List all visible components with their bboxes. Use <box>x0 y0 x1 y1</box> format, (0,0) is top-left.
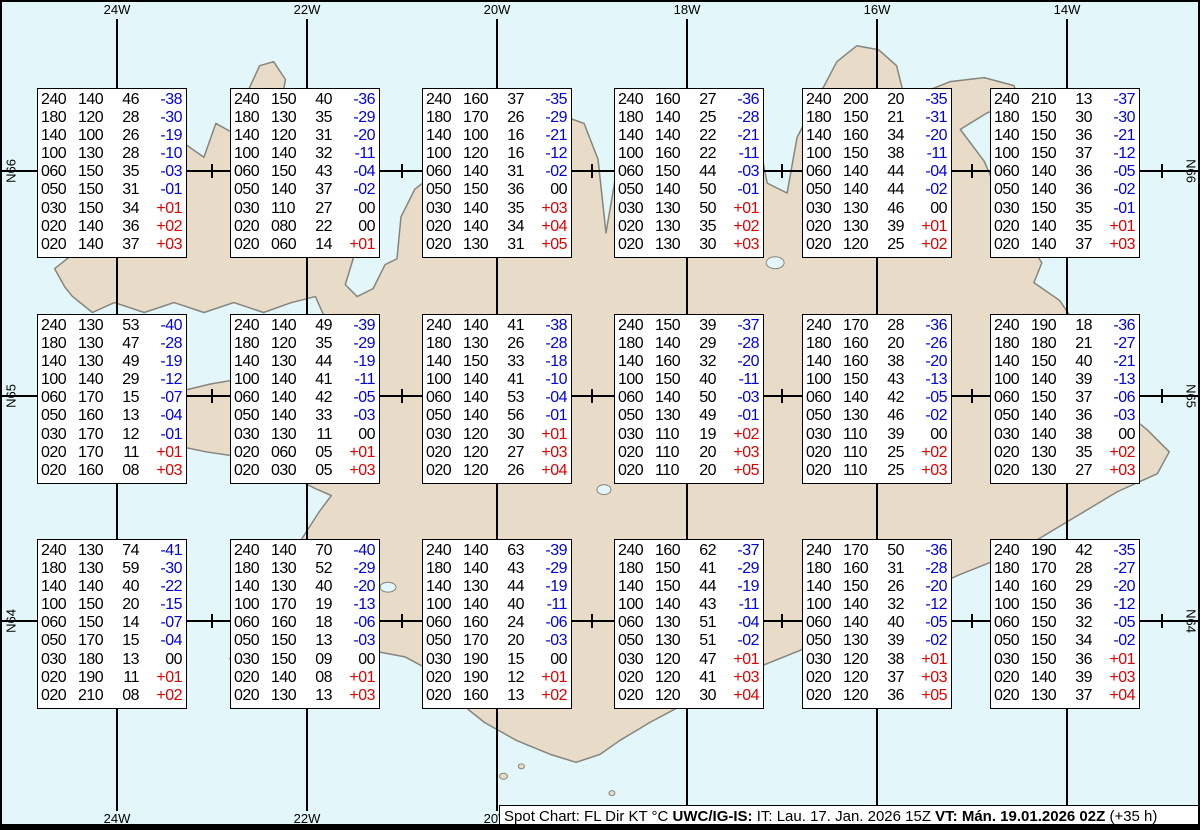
station-cell-temp: -02 <box>911 407 947 425</box>
minor-tick <box>781 164 783 178</box>
station-cell-fl: 030 <box>994 426 1024 444</box>
station-cell-dir: 140 <box>463 218 493 236</box>
station-cell-temp: -11 <box>723 371 759 389</box>
station-cell-fl: 050 <box>41 407 71 425</box>
station-cell-kt: 19 <box>308 596 332 614</box>
station-cell-kt: 26 <box>115 127 139 145</box>
station-cell-kt: 50 <box>692 200 716 218</box>
station-cell-temp: -03 <box>723 389 759 407</box>
footer-segment: IT: Lau. 17. Jan. 2026 15Z <box>753 808 936 825</box>
station-cell-kt: 36 <box>1068 181 1092 199</box>
station-cell-dir: 130 <box>78 335 108 353</box>
station-cell-temp: 00 <box>531 651 567 669</box>
station-cell-kt: 41 <box>692 669 716 687</box>
station-cell-dir: 140 <box>1031 669 1061 687</box>
station-row: 06014036-05 <box>994 163 1136 181</box>
station-row: 05015013-03 <box>234 632 376 650</box>
station-cell-fl: 060 <box>41 163 71 181</box>
station-cell-kt: 28 <box>1068 560 1092 578</box>
minor-tick <box>971 614 973 628</box>
station-cell-temp: -35 <box>1099 542 1135 560</box>
station-cell-kt: 25 <box>880 444 904 462</box>
station-cell-fl: 030 <box>426 651 456 669</box>
station-row: 05013039-02 <box>806 632 948 650</box>
station-row: 18017028-27 <box>994 560 1136 578</box>
station-cell-fl: 020 <box>806 462 836 480</box>
station-cell-temp: -41 <box>146 542 182 560</box>
station-cell-temp: -11 <box>339 371 375 389</box>
station-cell-kt: 62 <box>692 542 716 560</box>
station-row: 05017015-04 <box>41 632 183 650</box>
station-cell-kt: 42 <box>880 389 904 407</box>
station-cell-dir: 160 <box>1031 578 1061 596</box>
station-cell-dir: 130 <box>843 407 873 425</box>
station-cell-fl: 060 <box>994 614 1024 632</box>
station-cell-fl: 020 <box>426 687 456 705</box>
station-cell-fl: 180 <box>426 560 456 578</box>
station-cell-temp: -04 <box>911 163 947 181</box>
station-cell-fl: 140 <box>426 127 456 145</box>
station-cell-kt: 43 <box>692 596 716 614</box>
station-row: 02013013+03 <box>234 687 376 705</box>
station-row: 18014025-28 <box>618 109 760 127</box>
station-cell-temp: -11 <box>911 145 947 163</box>
station-box-r2c6: 24019018-3618018021-2714015040-211001403… <box>990 314 1140 484</box>
station-cell-dir: 140 <box>463 163 493 181</box>
station-cell-kt: 34 <box>880 127 904 145</box>
station-cell-temp: +01 <box>339 444 375 462</box>
station-cell-fl: 100 <box>994 145 1024 163</box>
station-cell-temp: +01 <box>1099 651 1135 669</box>
station-cell-kt: 36 <box>1068 596 1092 614</box>
station-cell-temp: 00 <box>146 651 182 669</box>
station-row: 24016062-37 <box>618 542 760 560</box>
station-cell-fl: 140 <box>41 127 71 145</box>
station-row: 03014035+03 <box>426 200 568 218</box>
station-cell-temp: +04 <box>1099 687 1135 705</box>
station-cell-dir: 150 <box>271 91 301 109</box>
station-cell-temp: -30 <box>1099 109 1135 127</box>
station-cell-dir: 140 <box>463 542 493 560</box>
station-row: 24014041-38 <box>426 317 568 335</box>
station-cell-temp: -36 <box>723 91 759 109</box>
station-cell-temp: -07 <box>146 614 182 632</box>
station-cell-dir: 140 <box>1031 407 1061 425</box>
station-cell-kt: 26 <box>500 109 524 127</box>
station-cell-dir: 150 <box>655 560 685 578</box>
station-cell-fl: 050 <box>994 407 1024 425</box>
station-cell-kt: 22 <box>692 145 716 163</box>
station-cell-fl: 030 <box>234 200 264 218</box>
station-cell-kt: 30 <box>692 687 716 705</box>
station-cell-temp: -29 <box>531 560 567 578</box>
station-cell-dir: 190 <box>78 669 108 687</box>
station-cell-dir: 160 <box>78 407 108 425</box>
station-cell-fl: 140 <box>234 353 264 371</box>
station-cell-kt: 22 <box>692 127 716 145</box>
station-cell-kt: 50 <box>692 389 716 407</box>
station-cell-dir: 140 <box>78 236 108 254</box>
station-row: 18017026-29 <box>426 109 568 127</box>
station-row: 24021013-37 <box>994 91 1136 109</box>
station-row: 05014036-03 <box>994 407 1136 425</box>
station-cell-temp: -28 <box>531 335 567 353</box>
station-cell-kt: 36 <box>115 218 139 236</box>
station-cell-temp: +02 <box>723 426 759 444</box>
station-cell-dir: 160 <box>463 687 493 705</box>
station-row: 06017015-07 <box>41 389 183 407</box>
station-cell-fl: 020 <box>618 669 648 687</box>
station-cell-temp: -13 <box>911 371 947 389</box>
station-cell-dir: 130 <box>271 560 301 578</box>
station-cell-temp: -21 <box>531 127 567 145</box>
station-cell-fl: 180 <box>994 335 1024 353</box>
station-cell-fl: 050 <box>41 181 71 199</box>
station-row: 10017019-13 <box>234 596 376 614</box>
station-row: 02012025+02 <box>806 236 948 254</box>
station-cell-fl: 240 <box>994 542 1024 560</box>
station-cell-kt: 35 <box>1068 200 1092 218</box>
station-cell-fl: 030 <box>806 426 836 444</box>
station-cell-temp: -04 <box>723 614 759 632</box>
station-cell-fl: 050 <box>994 632 1024 650</box>
station-cell-dir: 110 <box>271 200 301 218</box>
station-cell-temp: +01 <box>723 651 759 669</box>
station-row: 05013049-01 <box>618 407 760 425</box>
station-cell-dir: 080 <box>271 218 301 236</box>
station-cell-kt: 33 <box>308 407 332 425</box>
station-row: 02019011+01 <box>41 669 183 687</box>
station-cell-kt: 29 <box>692 335 716 353</box>
station-row: 14015040-21 <box>994 353 1136 371</box>
station-cell-dir: 190 <box>1031 317 1061 335</box>
station-cell-kt: 12 <box>500 669 524 687</box>
station-cell-dir: 150 <box>843 109 873 127</box>
station-cell-kt: 35 <box>500 200 524 218</box>
station-cell-dir: 130 <box>1031 687 1061 705</box>
station-cell-dir: 150 <box>1031 632 1061 650</box>
station-cell-kt: 52 <box>308 560 332 578</box>
station-cell-fl: 020 <box>994 462 1024 480</box>
station-cell-kt: 44 <box>692 163 716 181</box>
station-cell-kt: 13 <box>308 687 332 705</box>
station-cell-fl: 240 <box>426 542 456 560</box>
station-cell-fl: 100 <box>806 596 836 614</box>
station-cell-dir: 140 <box>78 371 108 389</box>
station-cell-fl: 050 <box>426 181 456 199</box>
station-cell-kt: 38 <box>880 145 904 163</box>
station-cell-fl: 100 <box>806 371 836 389</box>
station-cell-fl: 020 <box>234 218 264 236</box>
station-cell-kt: 12 <box>115 426 139 444</box>
station-row: 0501503600 <box>426 181 568 199</box>
station-cell-fl: 180 <box>806 335 836 353</box>
station-row: 10015038-11 <box>806 145 948 163</box>
station-cell-dir: 140 <box>655 335 685 353</box>
minor-tick <box>1161 389 1163 403</box>
station-cell-dir: 140 <box>463 596 493 614</box>
station-cell-dir: 160 <box>843 335 873 353</box>
station-cell-kt: 05 <box>308 462 332 480</box>
station-cell-dir: 150 <box>271 632 301 650</box>
station-cell-temp: +02 <box>911 444 947 462</box>
station-cell-fl: 060 <box>994 163 1024 181</box>
station-cell-temp: -15 <box>146 596 182 614</box>
station-cell-temp: -29 <box>339 109 375 127</box>
station-cell-fl: 100 <box>234 145 264 163</box>
station-cell-temp: +02 <box>1099 444 1135 462</box>
station-cell-dir: 130 <box>655 236 685 254</box>
station-cell-kt: 29 <box>115 371 139 389</box>
station-cell-dir: 140 <box>843 389 873 407</box>
station-row: 14016032-20 <box>618 353 760 371</box>
station-cell-kt: 28 <box>115 109 139 127</box>
station-row: 03012038+01 <box>806 651 948 669</box>
station-cell-temp: +03 <box>531 444 567 462</box>
station-cell-kt: 27 <box>500 444 524 462</box>
station-cell-fl: 060 <box>426 614 456 632</box>
station-row: 02011020+03 <box>618 444 760 462</box>
station-row: 06014031-02 <box>426 163 568 181</box>
station-cell-temp: 00 <box>911 426 947 444</box>
station-cell-temp: -05 <box>1099 614 1135 632</box>
station-cell-temp: -20 <box>339 578 375 596</box>
station-cell-kt: 36 <box>1068 127 1092 145</box>
station-row: 14015033-18 <box>426 353 568 371</box>
station-cell-dir: 140 <box>78 91 108 109</box>
station-cell-temp: -12 <box>1099 596 1135 614</box>
station-cell-fl: 100 <box>234 371 264 389</box>
station-cell-dir: 150 <box>271 163 301 181</box>
station-cell-fl: 020 <box>994 444 1024 462</box>
lon-label-top-22W: 22W <box>294 3 321 17</box>
station-row: 03017012-01 <box>41 426 183 444</box>
station-cell-kt: 36 <box>1068 407 1092 425</box>
station-cell-fl: 180 <box>426 335 456 353</box>
station-cell-temp: +03 <box>339 687 375 705</box>
station-row: 03013050+01 <box>618 200 760 218</box>
station-row: 02011020+05 <box>618 462 760 480</box>
station-cell-fl: 240 <box>234 317 264 335</box>
station-cell-dir: 160 <box>463 91 493 109</box>
station-cell-kt: 21 <box>880 109 904 127</box>
station-cell-temp: +04 <box>531 462 567 480</box>
station-cell-fl: 060 <box>426 163 456 181</box>
station-cell-kt: 53 <box>115 317 139 335</box>
station-row: 02012037+03 <box>806 669 948 687</box>
station-row: 02012030+04 <box>618 687 760 705</box>
station-row: 06016018-06 <box>234 614 376 632</box>
station-cell-dir: 160 <box>843 353 873 371</box>
station-row: 18013059-30 <box>41 560 183 578</box>
station-row: 10014043-11 <box>618 596 760 614</box>
station-row: 10014029-12 <box>41 371 183 389</box>
minor-tick <box>591 614 593 628</box>
station-cell-fl: 050 <box>426 632 456 650</box>
station-cell-dir: 120 <box>843 669 873 687</box>
station-cell-temp: +01 <box>339 669 375 687</box>
station-cell-dir: 120 <box>463 444 493 462</box>
station-cell-dir: 170 <box>463 109 493 127</box>
station-cell-temp: -37 <box>723 317 759 335</box>
station-box-r3c3: 24014063-3918014043-2914013044-191001404… <box>422 539 572 709</box>
station-cell-fl: 060 <box>41 614 71 632</box>
station-cell-fl: 030 <box>618 200 648 218</box>
station-cell-fl: 240 <box>41 317 71 335</box>
station-cell-temp: -36 <box>339 91 375 109</box>
station-cell-fl: 030 <box>41 200 71 218</box>
station-cell-kt: 05 <box>308 444 332 462</box>
station-cell-dir: 130 <box>843 218 873 236</box>
station-cell-fl: 240 <box>806 91 836 109</box>
station-cell-dir: 150 <box>463 181 493 199</box>
station-cell-temp: 00 <box>531 181 567 199</box>
station-cell-dir: 110 <box>655 462 685 480</box>
station-cell-temp: -28 <box>146 335 182 353</box>
station-cell-fl: 060 <box>234 389 264 407</box>
station-cell-kt: 39 <box>880 426 904 444</box>
station-row: 06014044-04 <box>806 163 948 181</box>
station-row: 02012036+05 <box>806 687 948 705</box>
station-cell-fl: 050 <box>41 632 71 650</box>
station-row: 24019042-35 <box>994 542 1136 560</box>
station-cell-temp: -04 <box>531 389 567 407</box>
station-cell-temp: 00 <box>339 426 375 444</box>
station-row: 02014008+01 <box>234 669 376 687</box>
station-row: 02013037+04 <box>994 687 1136 705</box>
station-cell-kt: 40 <box>880 614 904 632</box>
station-cell-temp: +05 <box>723 462 759 480</box>
station-cell-kt: 31 <box>308 127 332 145</box>
station-cell-fl: 140 <box>618 127 648 145</box>
station-cell-fl: 060 <box>234 614 264 632</box>
station-cell-dir: 130 <box>78 542 108 560</box>
station-cell-fl: 140 <box>994 353 1024 371</box>
station-cell-dir: 170 <box>271 596 301 614</box>
station-row: 0200802200 <box>234 218 376 236</box>
station-cell-kt: 39 <box>692 317 716 335</box>
station-cell-fl: 240 <box>618 317 648 335</box>
station-cell-kt: 40 <box>308 578 332 596</box>
station-row: 10012016-12 <box>426 145 568 163</box>
minor-tick <box>781 389 783 403</box>
station-cell-temp: -29 <box>531 109 567 127</box>
station-cell-temp: -28 <box>723 109 759 127</box>
station-cell-kt: 11 <box>308 426 332 444</box>
station-row: 14014022-21 <box>618 127 760 145</box>
station-cell-dir: 140 <box>78 218 108 236</box>
station-cell-dir: 140 <box>843 163 873 181</box>
station-cell-fl: 060 <box>426 389 456 407</box>
station-cell-temp: +01 <box>911 218 947 236</box>
station-cell-dir: 150 <box>655 371 685 389</box>
station-cell-temp: -02 <box>531 163 567 181</box>
station-row: 02014035+01 <box>994 218 1136 236</box>
station-row: 24017028-36 <box>806 317 948 335</box>
station-cell-temp: -04 <box>146 632 182 650</box>
station-cell-kt: 40 <box>500 596 524 614</box>
station-cell-temp: -27 <box>1099 335 1135 353</box>
spot-chart-stage: 24014046-3818012028-3014010026-191001302… <box>0 0 1200 830</box>
station-cell-temp: +02 <box>911 236 947 254</box>
station-cell-dir: 130 <box>463 236 493 254</box>
station-cell-kt: 11 <box>115 669 139 687</box>
station-cell-dir: 130 <box>271 353 301 371</box>
station-cell-dir: 060 <box>271 444 301 462</box>
station-cell-fl: 180 <box>234 335 264 353</box>
station-cell-temp: -05 <box>339 389 375 407</box>
station-row: 0301801300 <box>41 651 183 669</box>
station-cell-dir: 170 <box>78 426 108 444</box>
station-cell-kt: 59 <box>115 560 139 578</box>
station-cell-fl: 020 <box>234 236 264 254</box>
station-cell-temp: -13 <box>1099 371 1135 389</box>
station-cell-fl: 140 <box>41 578 71 596</box>
station-cell-temp: +03 <box>723 236 759 254</box>
station-cell-kt: 30 <box>1068 109 1092 127</box>
station-cell-temp: +01 <box>339 236 375 254</box>
station-cell-kt: 70 <box>308 542 332 560</box>
minor-tick <box>401 164 403 178</box>
station-cell-fl: 100 <box>426 371 456 389</box>
station-cell-kt: 22 <box>308 218 332 236</box>
station-row: 02011025+02 <box>806 444 948 462</box>
station-row: 24020020-35 <box>806 91 948 109</box>
station-cell-temp: -02 <box>339 181 375 199</box>
station-cell-fl: 060 <box>806 614 836 632</box>
station-cell-fl: 100 <box>806 145 836 163</box>
station-row: 18013047-28 <box>41 335 183 353</box>
station-cell-kt: 35 <box>308 109 332 127</box>
station-cell-dir: 160 <box>655 542 685 560</box>
station-cell-dir: 120 <box>843 687 873 705</box>
station-row: 02019012+01 <box>426 669 568 687</box>
lon-label-top-14W: 14W <box>1054 3 1081 17</box>
bottom-border-strip <box>2 824 1198 828</box>
station-cell-fl: 140 <box>426 578 456 596</box>
station-cell-kt: 15 <box>115 389 139 407</box>
minor-tick <box>211 389 213 403</box>
station-cell-temp: -21 <box>1099 353 1135 371</box>
station-cell-fl: 030 <box>994 200 1024 218</box>
station-cell-dir: 120 <box>655 669 685 687</box>
station-row: 10016022-11 <box>618 145 760 163</box>
station-cell-fl: 020 <box>41 236 71 254</box>
station-cell-temp: -12 <box>146 371 182 389</box>
station-cell-temp: 00 <box>339 651 375 669</box>
station-row: 03015034+01 <box>41 200 183 218</box>
station-row: 0301403800 <box>994 426 1136 444</box>
station-cell-dir: 140 <box>78 578 108 596</box>
station-cell-temp: -12 <box>1099 145 1135 163</box>
station-cell-fl: 050 <box>806 407 836 425</box>
station-row: 18018021-27 <box>994 335 1136 353</box>
station-cell-kt: 35 <box>308 335 332 353</box>
station-cell-fl: 140 <box>234 127 264 145</box>
station-row: 18014043-29 <box>426 560 568 578</box>
station-row: 02013035+02 <box>994 444 1136 462</box>
station-cell-fl: 030 <box>618 651 648 669</box>
station-cell-fl: 020 <box>426 669 456 687</box>
station-cell-temp: -20 <box>911 353 947 371</box>
station-cell-fl: 240 <box>806 317 836 335</box>
station-cell-dir: 170 <box>78 444 108 462</box>
station-row: 03015036+01 <box>994 651 1136 669</box>
station-row: 18013052-29 <box>234 560 376 578</box>
station-cell-dir: 210 <box>78 687 108 705</box>
station-cell-kt: 20 <box>880 335 904 353</box>
station-row: 03011019+02 <box>618 426 760 444</box>
